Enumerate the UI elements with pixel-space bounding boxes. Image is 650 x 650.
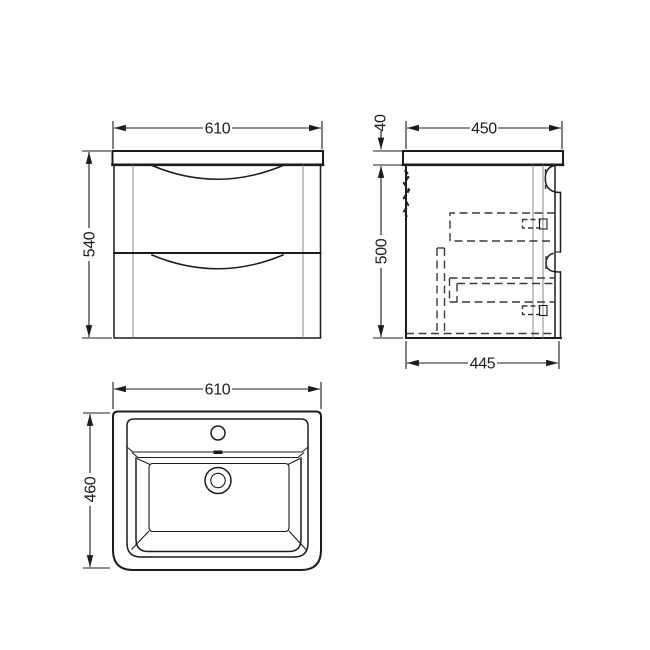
bottom-drawer-handle-curve xyxy=(152,255,283,269)
drain-inner-ring xyxy=(211,473,225,487)
bowl-slope-line xyxy=(289,531,306,550)
front-width-dim-label: 610 xyxy=(205,121,231,138)
basin-depth-dimension: 460 xyxy=(83,413,111,568)
bowl-slope-line xyxy=(132,531,150,550)
top-drawer-runner-hidden xyxy=(523,220,540,229)
side-height-dim-label: 500 xyxy=(374,238,391,264)
basin-depth-dim-label: 460 xyxy=(83,476,100,502)
bowl-slope-line xyxy=(288,459,300,465)
deck-corner-miter xyxy=(302,448,308,453)
bottom-drawer-runner-hidden xyxy=(523,306,540,315)
deck-corner-miter xyxy=(128,448,134,453)
worktop-thickness-dim-label: 40 xyxy=(373,114,390,132)
basin-plan-view: 610 460 xyxy=(83,382,322,571)
side-bottom-depth-dim-label: 445 xyxy=(470,356,496,373)
overflow-slot xyxy=(214,451,223,455)
front-height-dimension: 540 xyxy=(82,151,113,338)
bottom-handle-recess-profile xyxy=(546,254,560,273)
side-height-dimension: 500 xyxy=(373,166,403,338)
front-width-dimension: 610 xyxy=(113,121,322,150)
technical-drawing-page: 610 540 450 xyxy=(0,0,650,650)
bowl-corner-miter xyxy=(132,453,138,458)
basin-width-dimension: 610 xyxy=(113,382,321,410)
side-top-depth-dim-label: 450 xyxy=(471,121,497,138)
drain-waste-icon xyxy=(205,468,231,494)
side-bottom-depth-dimension: 445 xyxy=(406,341,559,373)
bowl-outer-wall xyxy=(136,458,301,552)
top-drawer-handle-curve xyxy=(152,166,283,180)
side-view: 450 40 500 445 xyxy=(373,114,564,372)
worktop-thickness-dimension: 40 xyxy=(373,114,405,165)
front-height-dim-label: 540 xyxy=(82,231,99,257)
front-view: 610 540 xyxy=(82,121,324,339)
worktop-section xyxy=(403,151,563,165)
basin-outline xyxy=(113,412,321,571)
front-cabinet-outline xyxy=(113,151,324,338)
worktop xyxy=(113,151,324,165)
basin-outer-edge xyxy=(113,412,321,571)
tap-hole xyxy=(211,426,225,440)
side-top-depth-dimension: 450 xyxy=(406,121,562,150)
bowl-slope-line xyxy=(137,459,150,465)
bowl-corner-miter xyxy=(298,453,304,458)
cabinet-body xyxy=(114,165,321,338)
drain-outer-ring xyxy=(205,468,231,494)
drawing-canvas: 610 540 450 xyxy=(0,0,650,650)
basin-width-dim-label: 610 xyxy=(205,382,231,399)
top-handle-recess-profile xyxy=(545,166,560,193)
